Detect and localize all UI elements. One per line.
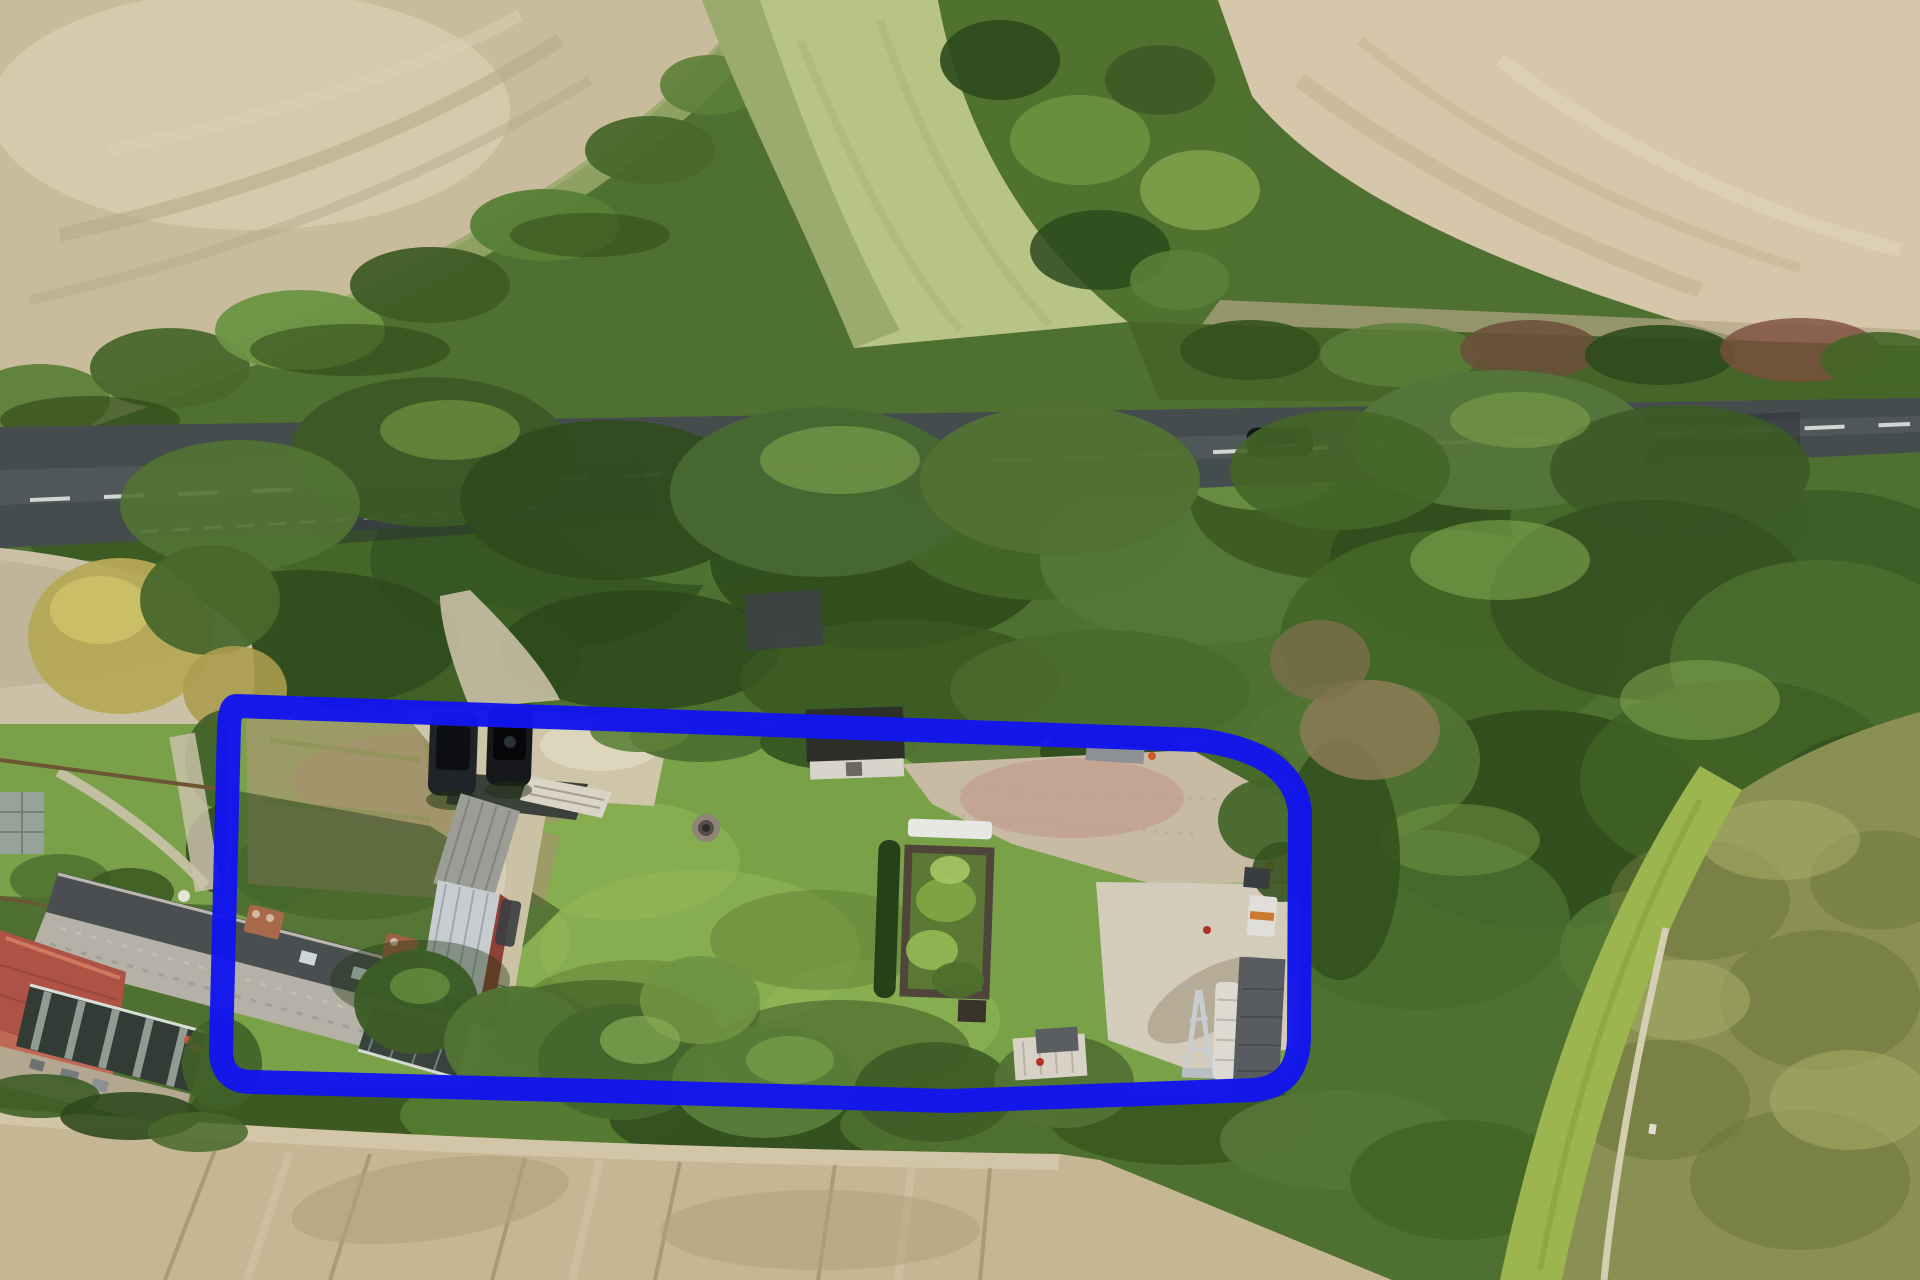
parked-car-windows	[435, 725, 471, 770]
bird-bath	[178, 890, 190, 902]
neighbor-green-tree	[140, 545, 280, 655]
garden-shed-door	[846, 762, 862, 777]
caravan-rib	[1217, 1000, 1237, 1001]
hedge-bush	[1180, 320, 1320, 380]
boat-a-frame-base	[1182, 1067, 1216, 1078]
fire-pit	[702, 824, 710, 832]
vegetables	[916, 878, 976, 922]
vegetables	[930, 856, 970, 884]
overhanging-tree-highlight	[1450, 392, 1590, 448]
deep-canopy-highlight	[1410, 520, 1590, 600]
car-shadow	[484, 781, 532, 799]
plot-tree-highlight	[600, 1016, 680, 1064]
hedge-shadow	[510, 213, 670, 257]
hedge-bush	[350, 247, 510, 323]
deep-canopy-highlight	[1380, 804, 1540, 876]
overhanging-tree	[920, 405, 1200, 555]
orange-item	[1148, 752, 1156, 760]
boat-a-frame-bar	[1188, 1048, 1210, 1050]
dark-items	[1243, 867, 1271, 889]
deep-canopy-highlight	[1620, 660, 1780, 740]
small-structure-roof	[1035, 1027, 1079, 1054]
hedge-bush	[1130, 250, 1230, 310]
footpath-post	[1648, 1124, 1656, 1135]
aerial-photograph	[0, 0, 1920, 1280]
vegetables	[932, 962, 984, 998]
overhanging-tree-highlight	[760, 426, 920, 494]
parked-car-sunroof	[504, 736, 516, 748]
overhanging-tree-highlight	[380, 400, 520, 460]
red-item	[1203, 926, 1211, 934]
compost-bin	[958, 1000, 987, 1023]
hedge-shadow	[250, 324, 450, 376]
chimney-pot	[252, 910, 260, 918]
boat-a-frame-bar	[1190, 1018, 1208, 1020]
hedge-bush	[1105, 45, 1215, 115]
hedge-bush	[585, 116, 715, 184]
shed-in-trees-roof	[744, 589, 824, 650]
hedge-bush	[1140, 150, 1260, 230]
plot-tree-highlight	[746, 1036, 834, 1084]
garden-bench	[908, 819, 993, 840]
chimney-pot	[266, 914, 274, 922]
red-item	[1036, 1058, 1044, 1066]
neighbor-yellow-tree-highlight	[50, 576, 150, 644]
caravan-rib	[1216, 1020, 1236, 1021]
plot-tree-highlight	[390, 968, 450, 1004]
field-dark-patch	[660, 1190, 980, 1270]
overhanging-tree	[1230, 410, 1450, 530]
aerial-photo-figure: Aerial drone photograph of a rural prope…	[0, 0, 1920, 1280]
caravan-rib	[1216, 1040, 1236, 1041]
hedge-bush	[940, 20, 1060, 100]
neighbor-bottom-hedge	[148, 1112, 248, 1152]
caravan-rib	[1215, 1060, 1235, 1061]
hedge-bush	[1585, 325, 1735, 385]
dirt-patch-ne-corner	[1270, 620, 1370, 700]
